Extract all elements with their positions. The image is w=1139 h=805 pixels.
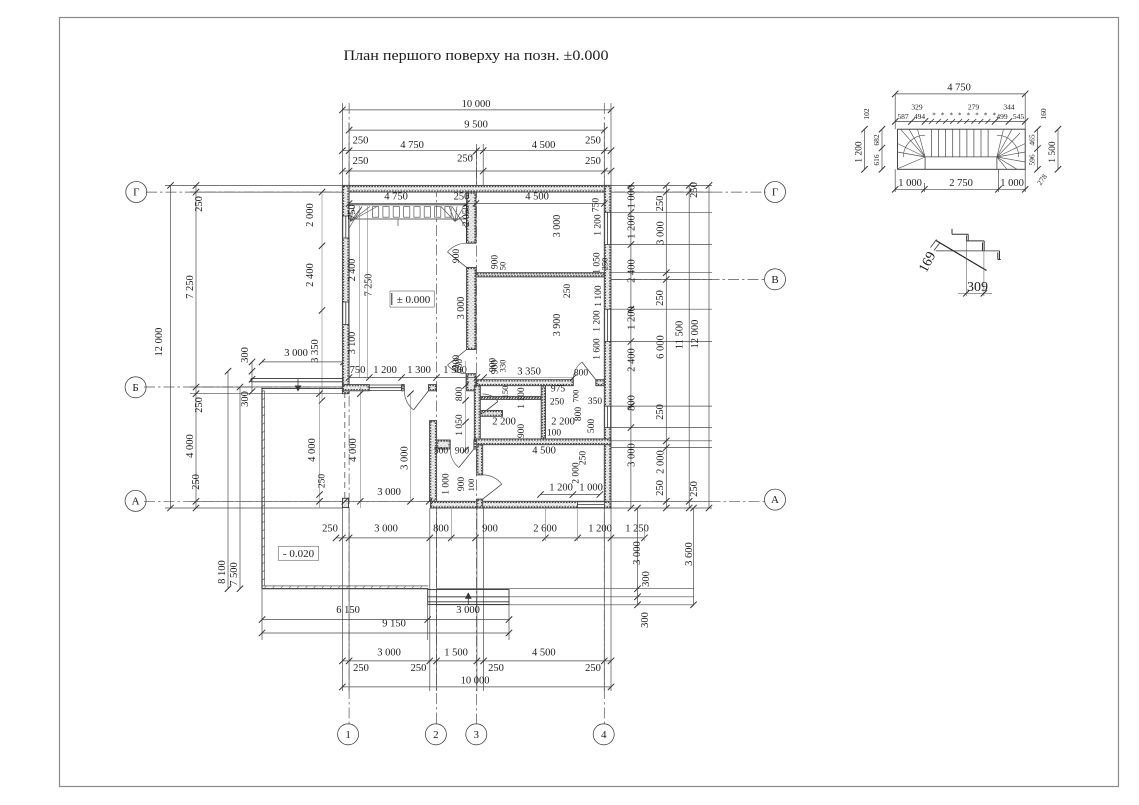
svg-text:250: 250 (194, 397, 205, 413)
svg-text:1 000: 1 000 (442, 473, 452, 495)
svg-text:3 000: 3 000 (400, 446, 411, 470)
svg-text:3: 3 (474, 729, 480, 741)
svg-text:4 000: 4 000 (307, 438, 318, 462)
svg-text:1 050: 1 050 (455, 414, 465, 436)
svg-text:2 600: 2 600 (533, 524, 557, 535)
svg-text:1 200: 1 200 (373, 365, 397, 376)
svg-text:1 000: 1 000 (579, 483, 603, 494)
svg-text:250: 250 (689, 481, 700, 497)
svg-text:250: 250 (563, 284, 573, 299)
svg-text:4 750: 4 750 (384, 192, 408, 203)
svg-text:12 000: 12 000 (690, 320, 701, 349)
svg-text:3 600: 3 600 (684, 542, 695, 566)
svg-text:250: 250 (600, 258, 610, 271)
svg-text:3 000: 3 000 (374, 524, 398, 535)
svg-text:2 050: 2 050 (462, 205, 472, 227)
svg-text:300: 300 (641, 571, 652, 587)
svg-text:100: 100 (466, 479, 476, 492)
svg-text:2 400: 2 400 (627, 259, 638, 283)
svg-text:*: * (958, 112, 962, 120)
svg-text:545: 545 (1013, 112, 1025, 121)
svg-text:2 000: 2 000 (305, 203, 316, 227)
svg-text:*: * (932, 112, 936, 120)
svg-text:250: 250 (411, 663, 427, 674)
svg-text:250: 250 (655, 290, 666, 306)
svg-text:800: 800 (455, 387, 465, 402)
svg-text:Б: Б (132, 382, 138, 394)
svg-text:4 750: 4 750 (947, 82, 971, 93)
svg-text:± 0.000: ± 0.000 (397, 294, 431, 306)
svg-text:3 000: 3 000 (377, 647, 401, 658)
svg-text:250: 250 (655, 196, 666, 212)
svg-text:4 500: 4 500 (532, 446, 556, 457)
svg-text:3 000: 3 000 (456, 605, 480, 616)
svg-text:3 000: 3 000 (632, 541, 643, 565)
svg-text:3 350: 3 350 (517, 367, 541, 378)
svg-text:300: 300 (240, 391, 251, 407)
svg-text:100: 100 (547, 429, 562, 439)
svg-text:250: 250 (488, 663, 504, 674)
svg-text:1 200: 1 200 (627, 306, 638, 330)
svg-text:9 150: 9 150 (382, 619, 406, 630)
svg-text:700: 700 (571, 390, 581, 403)
svg-text:2 400: 2 400 (627, 348, 638, 372)
svg-text:6 150: 6 150 (336, 605, 360, 616)
svg-text:900: 900 (482, 524, 498, 535)
svg-text:1 100: 1 100 (517, 387, 527, 409)
svg-text:465: 465 (1028, 134, 1037, 146)
svg-text:596: 596 (1028, 154, 1037, 166)
svg-text:1 200: 1 200 (627, 215, 638, 239)
svg-text:4: 4 (601, 729, 607, 741)
svg-text:1 000: 1 000 (627, 185, 638, 209)
svg-text:975: 975 (551, 385, 566, 395)
svg-text:4 750: 4 750 (400, 140, 424, 151)
svg-text:500: 500 (434, 447, 449, 457)
svg-text:- 0.020: - 0.020 (283, 548, 315, 560)
svg-text:*: * (949, 112, 953, 120)
svg-text:587: 587 (897, 112, 909, 121)
svg-text:11 500: 11 500 (675, 321, 686, 350)
svg-text:750: 750 (347, 205, 358, 220)
svg-text:250: 250 (353, 136, 369, 147)
svg-text:4 500: 4 500 (525, 192, 549, 203)
svg-text:250: 250 (322, 524, 338, 535)
svg-text:8 100: 8 100 (217, 560, 228, 584)
svg-text:800: 800 (627, 395, 638, 411)
svg-text:7 250: 7 250 (185, 275, 196, 299)
svg-text:500: 500 (587, 419, 597, 434)
svg-text:102: 102 (862, 108, 871, 120)
svg-text:3 350: 3 350 (310, 339, 321, 363)
svg-text:250: 250 (550, 398, 565, 408)
svg-text:160: 160 (1039, 108, 1048, 120)
svg-text:50: 50 (498, 262, 508, 271)
svg-text:250: 250 (585, 136, 601, 147)
svg-text:3 000: 3 000 (552, 215, 563, 238)
svg-text:А: А (132, 496, 140, 508)
svg-text:900: 900 (489, 358, 499, 373)
svg-text:250: 250 (655, 480, 666, 496)
svg-text:3 000: 3 000 (284, 348, 308, 359)
svg-text:682: 682 (872, 134, 881, 146)
svg-text:1 200: 1 200 (594, 214, 604, 236)
svg-text:3 100: 3 100 (347, 332, 358, 355)
svg-text:499: 499 (996, 112, 1008, 121)
svg-text:1 100: 1 100 (594, 285, 604, 307)
svg-text:250: 250 (353, 663, 369, 674)
svg-text:800: 800 (433, 524, 449, 535)
svg-text:1 300: 1 300 (407, 365, 431, 376)
svg-text:279: 279 (968, 103, 980, 112)
svg-text:900: 900 (455, 447, 470, 457)
svg-text:3 000: 3 000 (627, 443, 638, 467)
svg-text:Г: Г (772, 187, 778, 199)
svg-text:550: 550 (455, 359, 465, 374)
svg-text:330: 330 (498, 360, 508, 373)
svg-text:1 200: 1 200 (593, 310, 603, 332)
svg-text:2 750: 2 750 (949, 178, 973, 189)
svg-text:350: 350 (588, 397, 603, 407)
svg-text:250: 250 (191, 474, 202, 490)
svg-text:В: В (771, 274, 778, 286)
svg-text:1 500: 1 500 (1048, 141, 1058, 163)
svg-text:4 000: 4 000 (185, 434, 196, 458)
svg-text:250: 250 (585, 663, 601, 674)
svg-text:3 900: 3 900 (552, 314, 563, 337)
svg-text:*: * (992, 112, 996, 120)
svg-text:1 200: 1 200 (549, 483, 573, 494)
svg-text:150: 150 (500, 386, 510, 399)
svg-text:12 000: 12 000 (154, 328, 165, 357)
svg-text:*: * (941, 112, 945, 120)
svg-text:2 400: 2 400 (305, 263, 316, 287)
svg-text:1 200: 1 200 (855, 141, 865, 163)
svg-text:7 250: 7 250 (364, 274, 375, 297)
svg-text:250: 250 (353, 156, 369, 167)
svg-text:*: * (967, 112, 971, 120)
svg-text:900: 900 (452, 249, 462, 264)
svg-text:3 000: 3 000 (655, 221, 666, 245)
svg-text:1 250: 1 250 (625, 524, 649, 535)
svg-text:250: 250 (194, 196, 205, 212)
svg-text:6 000: 6 000 (655, 335, 666, 359)
svg-text:Г: Г (133, 187, 139, 199)
svg-text:1 000: 1 000 (1000, 178, 1024, 189)
svg-text:616: 616 (872, 154, 881, 166)
svg-text:2 000: 2 000 (572, 462, 582, 484)
svg-text:3 000: 3 000 (456, 297, 467, 320)
svg-text:309: 309 (967, 280, 988, 295)
svg-text:800: 800 (574, 369, 589, 379)
svg-text:7 500: 7 500 (229, 562, 240, 586)
svg-text:3 000: 3 000 (377, 487, 401, 498)
svg-text:План першого поверху на позн.: План першого поверху на позн. ±0.000 (344, 47, 609, 64)
svg-text:900: 900 (517, 424, 527, 439)
svg-text:*: * (984, 112, 988, 120)
svg-text:4 500: 4 500 (532, 647, 556, 658)
svg-text:1 600: 1 600 (593, 338, 603, 360)
svg-text:1 200: 1 200 (588, 524, 612, 535)
svg-text:250: 250 (454, 192, 470, 203)
svg-text:250: 250 (457, 154, 473, 165)
svg-text:344: 344 (1003, 103, 1015, 112)
svg-text:А: А (771, 494, 779, 506)
svg-text:1 000: 1 000 (898, 178, 922, 189)
svg-text:2 000: 2 000 (655, 450, 666, 474)
svg-text:250: 250 (655, 404, 666, 420)
svg-text:250: 250 (585, 156, 601, 167)
svg-text:250: 250 (318, 474, 328, 489)
svg-text:9 500: 9 500 (464, 119, 488, 130)
svg-text:2: 2 (433, 729, 439, 741)
svg-text:*: * (975, 112, 979, 120)
svg-text:1 500: 1 500 (444, 647, 468, 658)
svg-text:250: 250 (689, 182, 700, 198)
svg-text:300: 300 (640, 612, 651, 628)
svg-text:494: 494 (914, 112, 926, 121)
svg-text:750: 750 (592, 198, 602, 213)
svg-text:4 500: 4 500 (532, 140, 556, 151)
svg-text:800: 800 (574, 407, 584, 422)
svg-text:2 200: 2 200 (492, 417, 516, 428)
svg-text:2 200: 2 200 (551, 417, 575, 428)
svg-text:300: 300 (240, 347, 251, 363)
svg-text:2 400: 2 400 (347, 259, 358, 282)
svg-text:4 000: 4 000 (348, 438, 359, 462)
svg-text:10 000: 10 000 (461, 675, 490, 686)
svg-text:10 000: 10 000 (462, 99, 491, 110)
svg-text:1: 1 (345, 729, 351, 741)
svg-text:750: 750 (350, 365, 366, 376)
svg-text:329: 329 (911, 103, 923, 112)
